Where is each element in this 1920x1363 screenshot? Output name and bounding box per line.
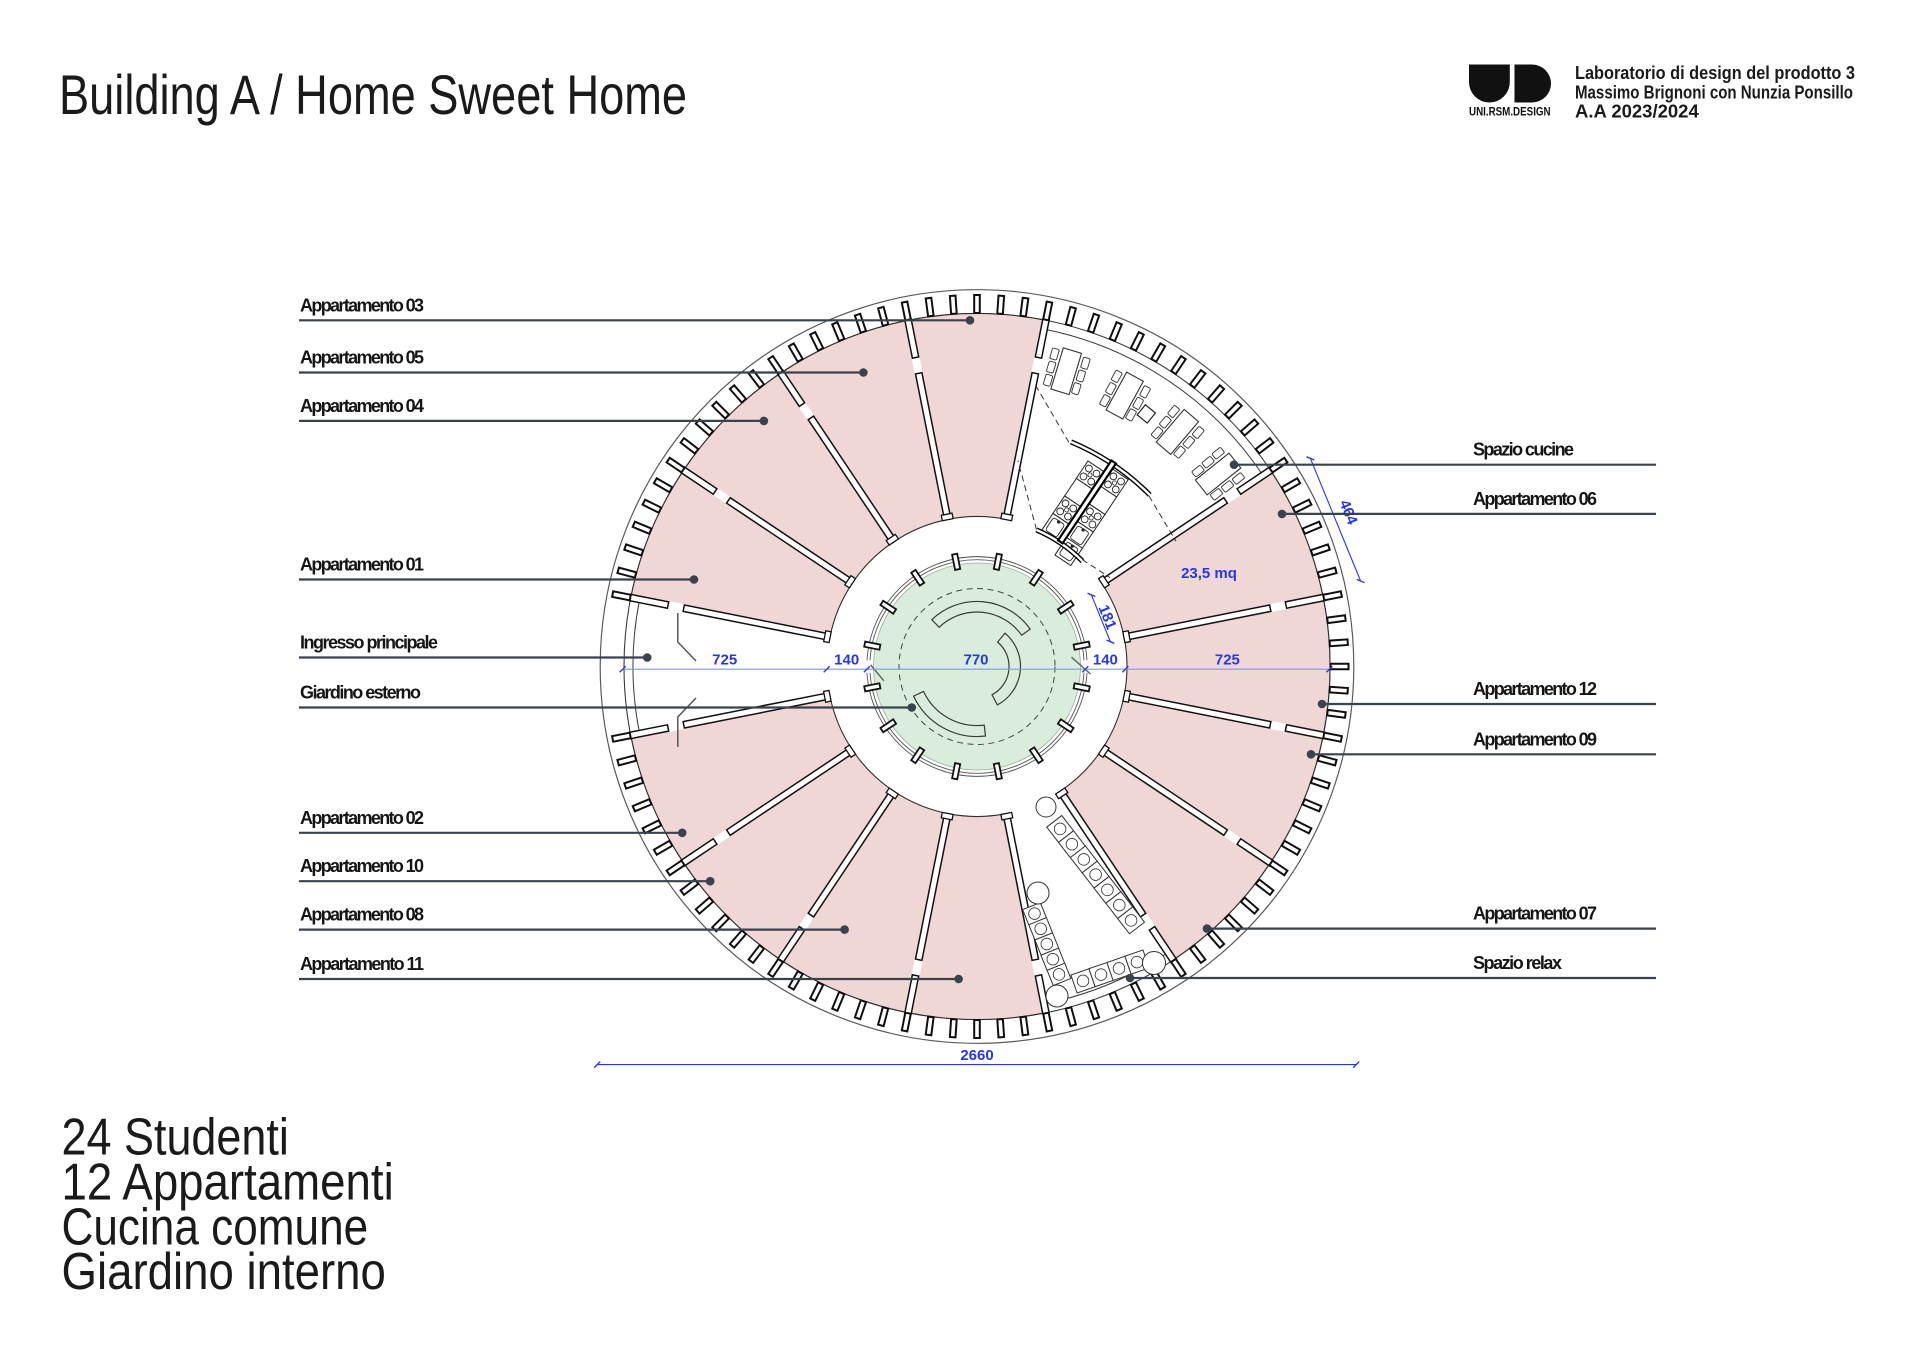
svg-text:Ingresso principale: Ingresso principale bbox=[300, 633, 438, 653]
svg-text:Appartamento 08: Appartamento 08 bbox=[300, 905, 424, 925]
svg-text:Laboratorio di design del prod: Laboratorio di design del prodotto 3 bbox=[1575, 62, 1855, 83]
svg-text:725: 725 bbox=[712, 652, 737, 669]
svg-text:140: 140 bbox=[834, 652, 859, 669]
svg-text:Appartamento 06: Appartamento 06 bbox=[1473, 489, 1597, 509]
svg-text:Giardino interno: Giardino interno bbox=[62, 1243, 386, 1301]
svg-text:A.A 2023/2024: A.A 2023/2024 bbox=[1575, 101, 1699, 122]
svg-text:Spazio relax: Spazio relax bbox=[1473, 953, 1562, 973]
svg-text:140: 140 bbox=[1093, 652, 1118, 669]
svg-text:770: 770 bbox=[963, 652, 988, 669]
svg-text:Giardino esterno: Giardino esterno bbox=[300, 683, 421, 703]
svg-text:2660: 2660 bbox=[960, 1047, 993, 1064]
svg-text:Appartamento 04: Appartamento 04 bbox=[300, 396, 424, 416]
svg-text:Appartamento 01: Appartamento 01 bbox=[300, 555, 424, 575]
svg-text:Appartamento 05: Appartamento 05 bbox=[300, 348, 424, 368]
svg-text:725: 725 bbox=[1215, 652, 1240, 669]
svg-text:Appartamento 02: Appartamento 02 bbox=[300, 808, 424, 828]
svg-text:23,5 mq: 23,5 mq bbox=[1181, 565, 1237, 582]
svg-text:Building A / Home Sweet Home: Building A / Home Sweet Home bbox=[59, 63, 687, 126]
svg-text:Appartamento 07: Appartamento 07 bbox=[1473, 904, 1597, 924]
svg-text:Appartamento 03: Appartamento 03 bbox=[300, 295, 424, 315]
svg-text:Spazio cucine: Spazio cucine bbox=[1473, 440, 1574, 460]
svg-text:Appartamento 10: Appartamento 10 bbox=[300, 856, 424, 876]
svg-text:UNI.RSM.DESIGN: UNI.RSM.DESIGN bbox=[1469, 107, 1551, 119]
svg-text:Appartamento 12: Appartamento 12 bbox=[1473, 679, 1597, 699]
svg-text:Appartamento 09: Appartamento 09 bbox=[1473, 729, 1597, 749]
svg-text:Appartamento 11: Appartamento 11 bbox=[300, 954, 424, 974]
